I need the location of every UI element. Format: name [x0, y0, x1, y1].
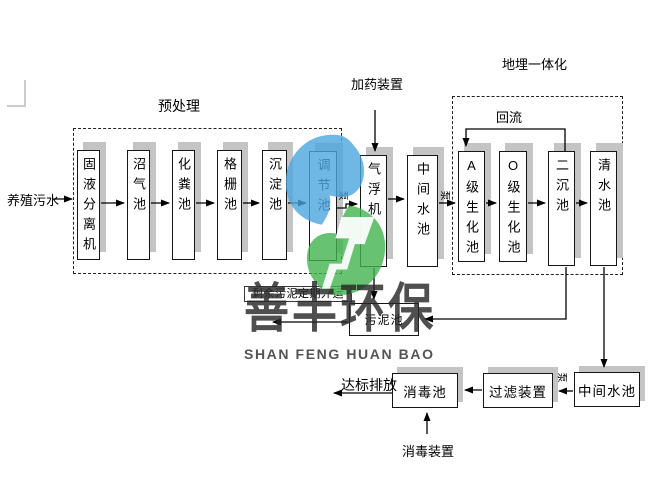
label-dosing-device: 加药装置 — [351, 74, 403, 93]
node-sedimentation-pool: 沉淀池 — [262, 150, 287, 260]
node-o-level-bio-pool: O级生化池 — [499, 151, 527, 262]
node-label: 固液分离机 — [82, 151, 95, 259]
flow-diagram: 预处理 地埋一体化 养殖污水 加药装置 回流 泵 泵 泵 达标排放 消毒装置 剩… — [0, 0, 650, 500]
node-intermediate-pool-top: 中间水池 — [407, 155, 438, 267]
node-secondary-sedimentation-pool: 二沉池 — [548, 151, 575, 266]
label-pump-1: 泵 — [337, 191, 352, 201]
watermark-en-text: SHAN FENG HUAN BAO — [244, 346, 428, 362]
node-biogas-pool: 沼气池 — [127, 150, 150, 260]
node-filter-device: 过滤装置 — [483, 373, 553, 408]
node-label: 清水池 — [597, 152, 610, 265]
node-label: 气浮机 — [367, 156, 380, 266]
node-solid-liquid-separator: 固液分离机 — [77, 150, 100, 260]
node-label: A级生化池 — [465, 152, 478, 261]
node-disinfection-pool: 消毒池 — [392, 373, 458, 408]
label-buried-integration: 地埋一体化 — [502, 54, 567, 73]
node-grille-pool: 格栅池 — [217, 150, 242, 260]
node-label: 沼气池 — [132, 151, 145, 259]
page-corner-mark — [0, 0, 40, 120]
node-regulating-pool: 调节池 — [309, 151, 337, 261]
label-influent: 养殖污水 — [7, 190, 59, 209]
node-label: 污泥池 — [364, 311, 403, 328]
node-label: 沉淀池 — [268, 151, 281, 259]
node-intermediate-pool-bottom: 中间水池 — [574, 372, 640, 407]
label-pretreatment: 预处理 — [158, 96, 200, 116]
node-clear-water-pool: 清水池 — [590, 151, 617, 266]
label-sludge-out: 剩余污泥定期外运 — [244, 286, 352, 302]
label-discharge: 达标排放 — [341, 375, 397, 395]
label-reflux: 回流 — [496, 107, 522, 126]
label-disinfection-device: 消毒装置 — [402, 441, 454, 460]
node-septic-tank: 化粪池 — [172, 150, 195, 260]
node-label: 调节池 — [317, 152, 330, 260]
node-label: 格栅池 — [223, 151, 236, 259]
label-pump-3: 泵 — [556, 373, 571, 383]
node-air-flotation-machine: 气浮机 — [360, 155, 387, 267]
node-label: 过滤装置 — [489, 381, 547, 401]
node-label: 中间水池 — [416, 156, 429, 266]
node-a-level-bio-pool: A级生化池 — [458, 151, 485, 262]
node-label: O级生化池 — [507, 152, 520, 261]
node-label: 消毒池 — [403, 381, 447, 401]
node-label: 二沉池 — [555, 152, 568, 265]
node-sludge-pool: 污泥池 — [349, 303, 419, 336]
node-label: 中间水池 — [578, 380, 636, 400]
section-pretreatment-box — [73, 128, 342, 274]
node-label: 化粪池 — [177, 151, 190, 259]
label-pump-2: 泵 — [439, 191, 454, 201]
